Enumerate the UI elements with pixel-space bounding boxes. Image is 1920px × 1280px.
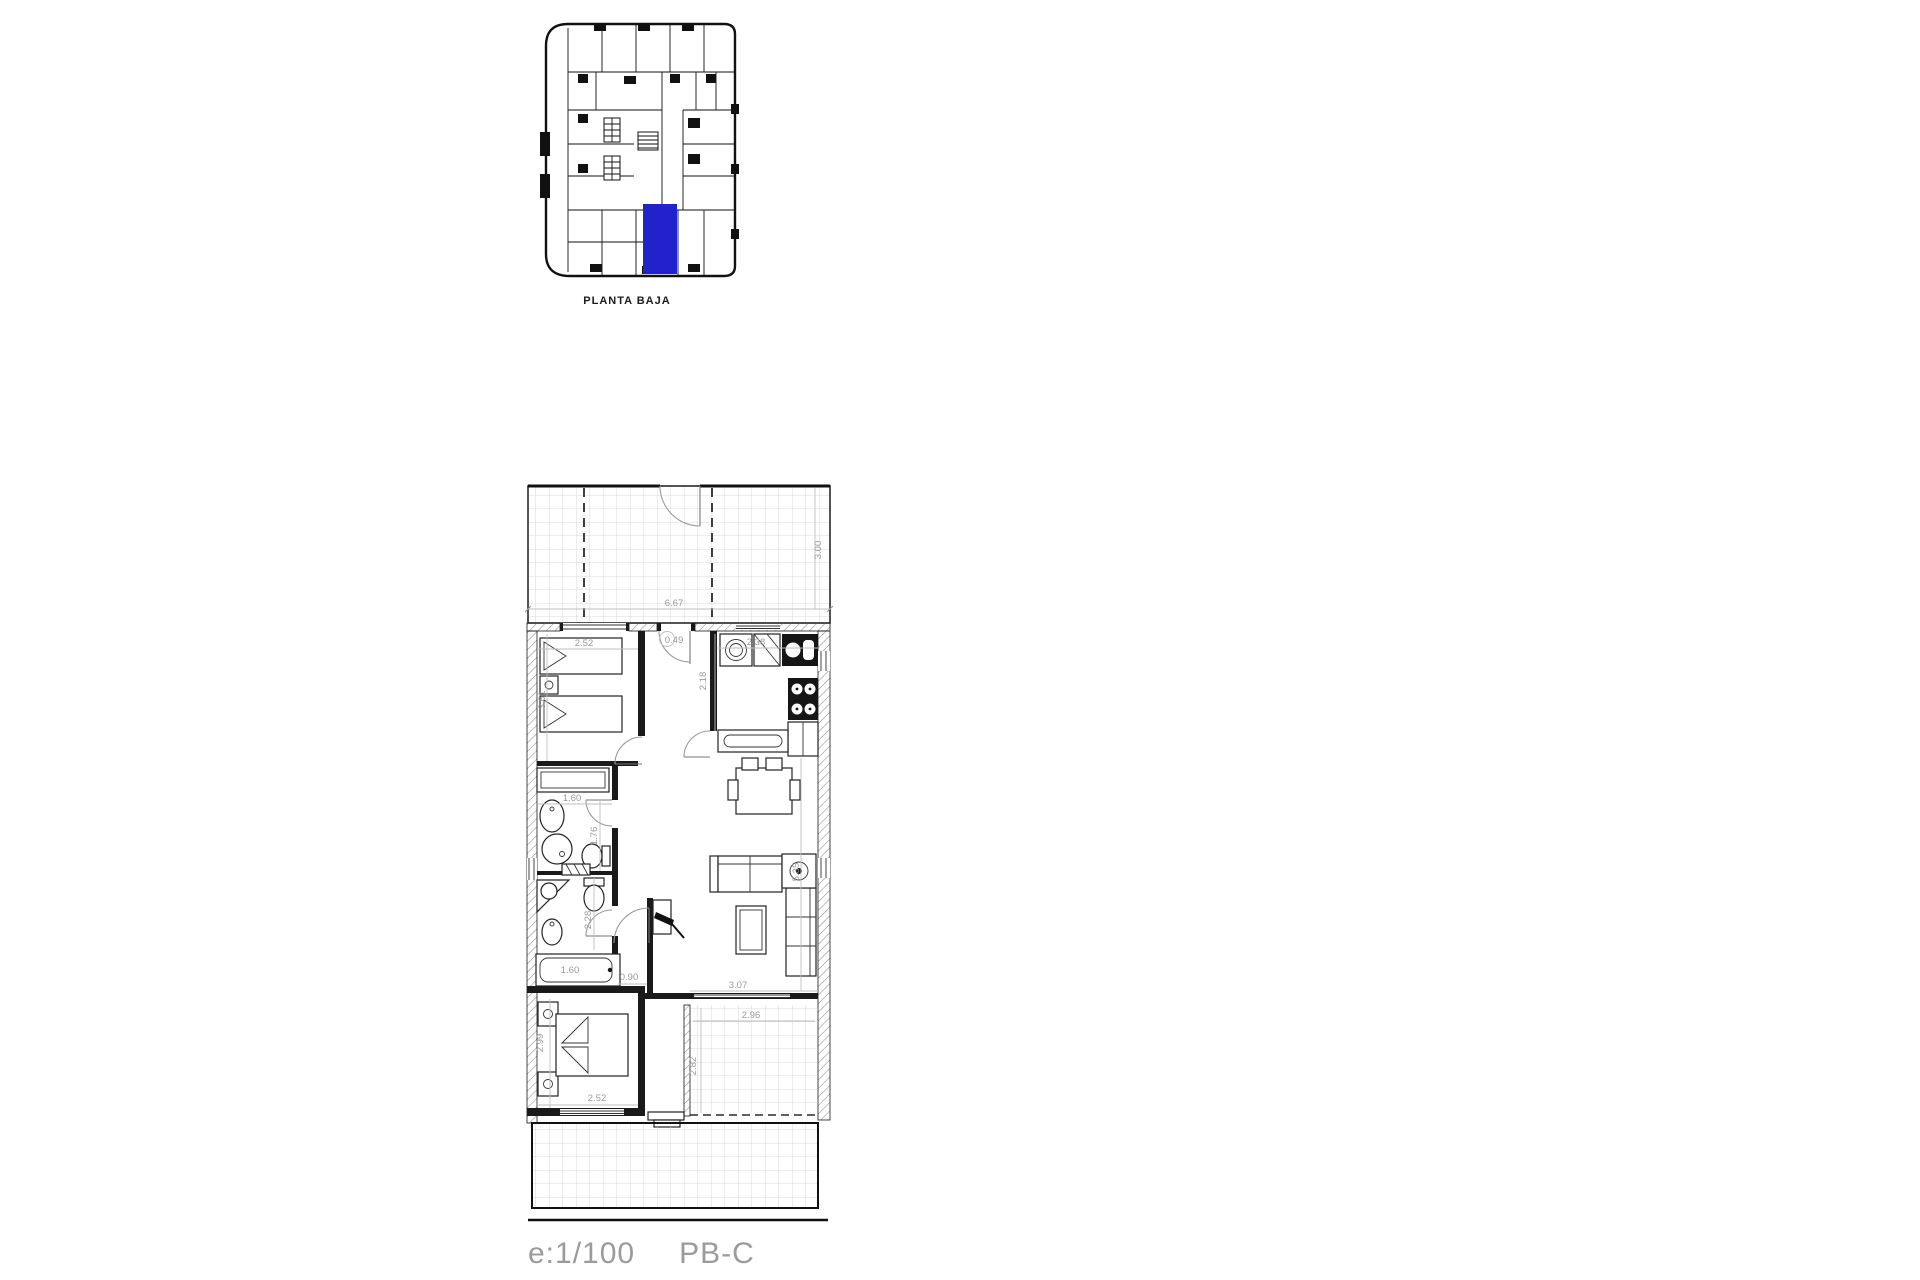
door-living	[684, 731, 710, 757]
dim-bedroom1-width: 2.52	[575, 638, 594, 649]
title-block: e:1/100 PB-C	[528, 1237, 755, 1271]
bedroom-2: 2.52 2.99	[527, 999, 684, 1127]
overview-caption: PLANTA BAJA	[521, 295, 733, 307]
site-plan-overview	[538, 14, 748, 304]
dim-living-depth: 5.35	[791, 863, 802, 882]
window-kitchen	[736, 624, 780, 630]
radiator-icon	[562, 864, 590, 875]
dim-kitchen-depth: 2.18	[698, 672, 709, 691]
dim-bath2-depth: 2.28	[583, 911, 594, 930]
door-bedroom2	[614, 908, 649, 943]
stairs-icon	[638, 132, 658, 150]
window-bath1	[527, 858, 537, 880]
dining-area	[728, 758, 800, 814]
dim-vanity-width: 1.60	[563, 793, 582, 804]
hob-icon	[788, 678, 818, 720]
apartment-floor-plan: 6.67 3.00	[522, 468, 834, 1232]
scale-label: e:1/100	[528, 1237, 635, 1271]
dim-living-width: 3.07	[729, 980, 748, 991]
kitchen: 2.38	[718, 634, 818, 756]
sink-icon	[782, 634, 818, 666]
door-bedroom1	[615, 737, 642, 764]
kitchen-cabinet-icon	[788, 722, 818, 756]
tv-icon	[653, 900, 684, 938]
patio: 2.96 2.82	[684, 1005, 818, 1116]
dim-bathtub-length: 1.60	[561, 965, 580, 976]
terrace-bottom	[532, 1123, 818, 1208]
nightstand-icon	[538, 1072, 558, 1096]
nightstand-icon	[538, 1002, 558, 1026]
coffee-table-icon	[736, 906, 766, 954]
shower-icon	[542, 834, 572, 864]
bedroom2-bottom-wall	[527, 1108, 645, 1116]
dining-table-icon	[728, 758, 800, 814]
single-bed-icon	[540, 696, 622, 732]
dim-terrace-width: 6.67	[665, 598, 684, 609]
bedroom-1: 2.52 3.61	[537, 634, 638, 792]
dim-hall-bottom-width: 0.90	[620, 972, 639, 983]
dim-kitchen-width: 2.38	[747, 637, 766, 648]
dim-patio-depth: 2.82	[688, 1057, 699, 1076]
terrace-top: 6.67 3.00	[525, 486, 833, 623]
dim-bedroom2-width: 2.52	[588, 1093, 607, 1104]
window-kitchen-side	[818, 651, 830, 671]
dim-bedroom2-depth: 2.99	[535, 1034, 546, 1053]
bidet-icon	[542, 919, 562, 945]
highlighted-unit	[643, 204, 677, 274]
window-bedroom1	[560, 623, 629, 631]
dim-patio-width: 2.96	[742, 1010, 761, 1021]
bathroom-2: 1.60 2.28	[536, 878, 620, 986]
window-living-side	[818, 858, 830, 878]
dim-bath1-depth: 1.76	[589, 827, 600, 846]
unit-code-label: PB-C	[679, 1237, 755, 1271]
washbasin-icon	[540, 800, 564, 832]
bathroom-1: 1.60 1.76	[537, 793, 612, 875]
dim-terrace-depth: 3.00	[813, 541, 824, 560]
corner-washbasin-icon	[537, 880, 569, 912]
window-living-to-patio	[694, 994, 790, 998]
dim-bedroom1-depth: 3.61	[537, 691, 548, 710]
double-bed-icon	[556, 1014, 628, 1076]
kitchen-bench-icon	[718, 730, 788, 752]
wardrobe-icon	[537, 768, 609, 792]
dim-hall-entry-width: 0.49	[665, 635, 684, 646]
floor-plan-sheet: PLANTA BAJA 6.67 3.00	[0, 0, 1920, 1280]
